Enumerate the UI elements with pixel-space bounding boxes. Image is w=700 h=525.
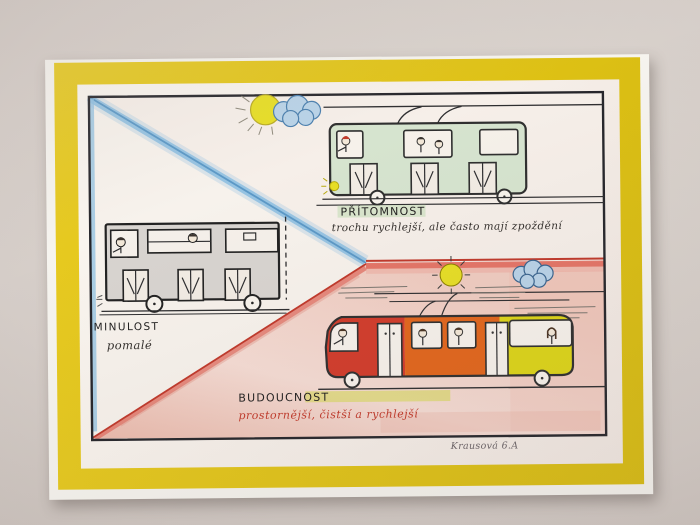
artist-signature: Krausová 6.A [451,440,519,452]
drawing-artwork: PŘÍTOMNOST trochu rychlejší, ale často m… [87,91,607,442]
past-bus [96,223,280,313]
past-title: MINULOST [94,321,160,334]
present-trolleybus [321,122,527,205]
future-tram [319,311,585,388]
present-title: PŘÍTOMNOST [340,205,425,219]
future-title: BUDOUCNOST [238,391,329,405]
paper-stack: PŘÍTOMNOST trochu rychlejší, ale často m… [0,0,700,525]
past-caption: pomalé [107,338,153,352]
future-caption: prostornější, čistší a rychlejší [238,407,419,422]
present-caption: trochu rychlejší, ale často mají zpožděn… [332,219,564,234]
photo-background: PŘÍTOMNOST trochu rychlejší, ale často m… [0,0,700,525]
drawing-paper: PŘÍTOMNOST trochu rychlejší, ale často m… [77,79,623,468]
